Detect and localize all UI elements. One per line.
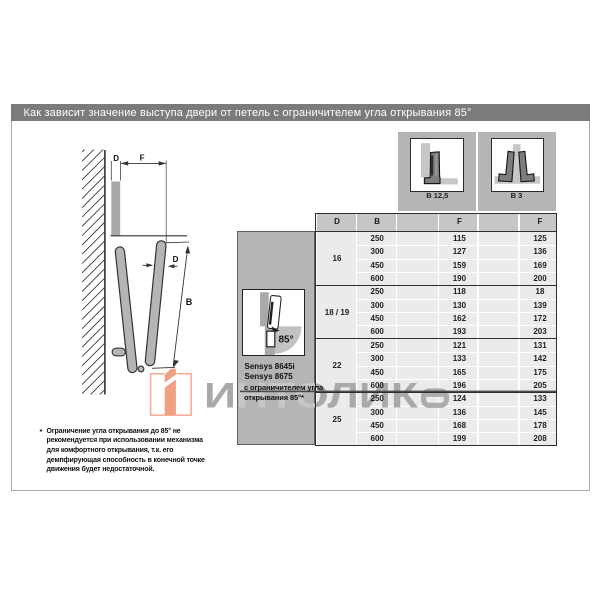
svg-text:85°: 85° xyxy=(279,334,294,345)
svg-text:F: F xyxy=(140,153,145,162)
svg-text:D: D xyxy=(113,154,119,163)
svg-text:D: D xyxy=(173,255,179,264)
svg-text:B: B xyxy=(186,297,193,307)
